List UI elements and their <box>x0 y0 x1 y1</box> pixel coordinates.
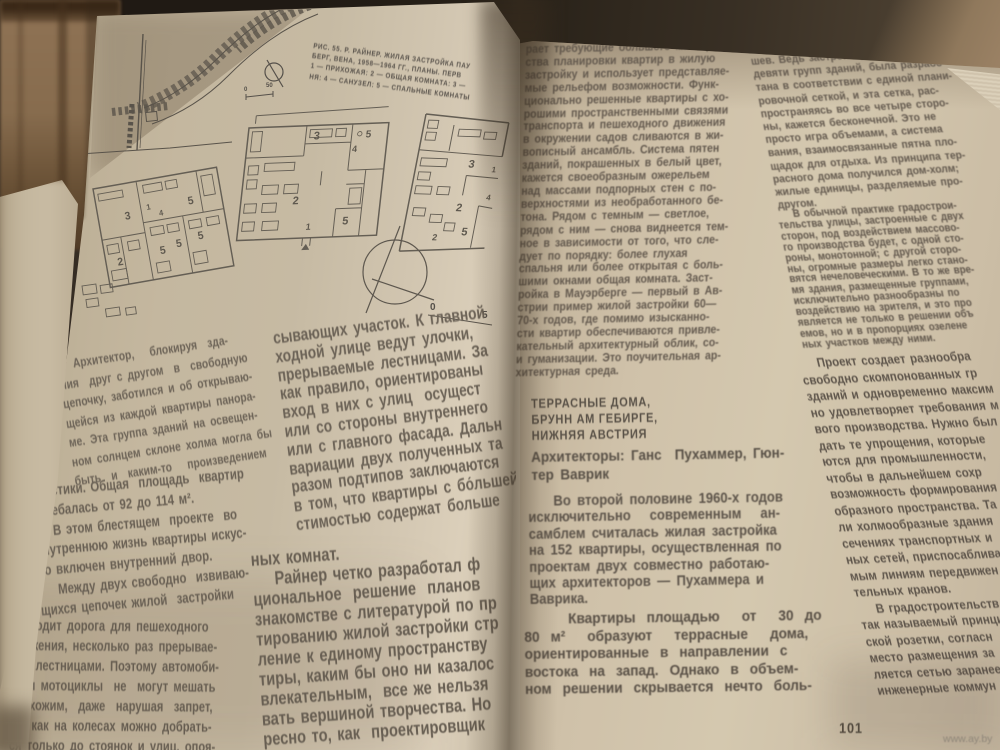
svg-text:1: 1 <box>305 222 311 232</box>
svg-text:4: 4 <box>158 208 164 218</box>
svg-text:5: 5 <box>197 229 205 242</box>
svg-text:5: 5 <box>175 237 183 250</box>
svg-text:50: 50 <box>266 83 273 89</box>
svg-text:1: 1 <box>146 202 152 212</box>
svg-text:2: 2 <box>455 202 463 214</box>
svg-text:3: 3 <box>124 210 132 223</box>
svg-text:5: 5 <box>341 215 348 227</box>
svg-text:5: 5 <box>187 195 195 208</box>
svg-text:2: 2 <box>117 256 125 269</box>
svg-text:0: 0 <box>244 87 248 93</box>
svg-text:5: 5 <box>365 129 372 140</box>
svg-text:3: 3 <box>313 130 320 142</box>
svg-text:4: 4 <box>352 144 358 154</box>
svg-text:2: 2 <box>292 195 299 207</box>
svg-text:2: 2 <box>431 232 438 242</box>
svg-text:5: 5 <box>159 244 167 257</box>
svg-text:5: 5 <box>460 226 468 238</box>
